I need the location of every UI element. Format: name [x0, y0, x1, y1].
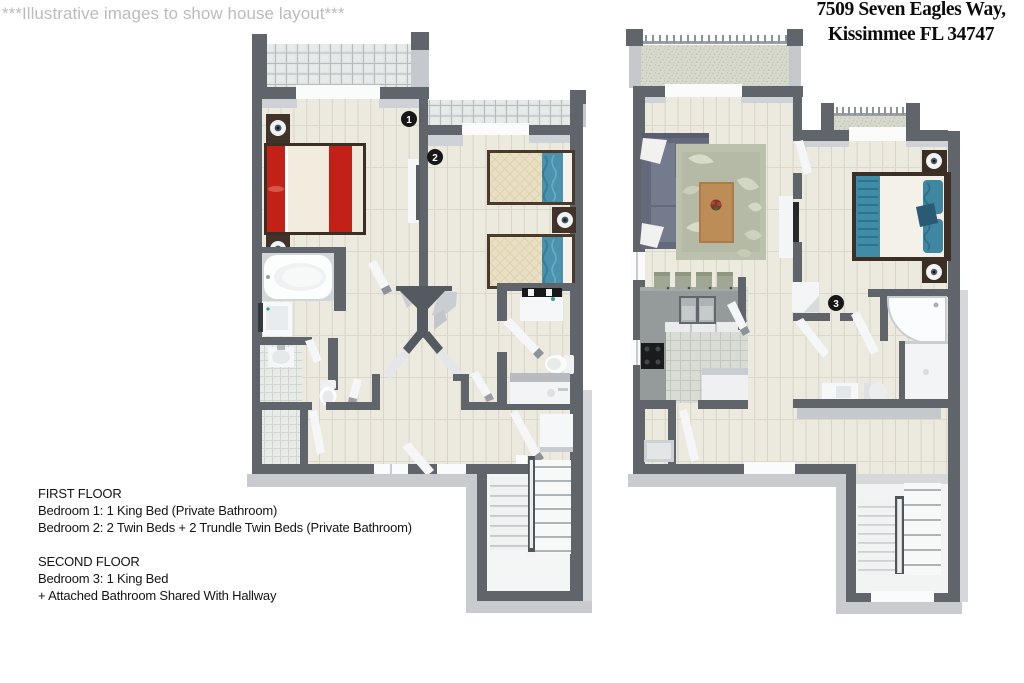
svg-text:3: 3: [833, 299, 839, 310]
svg-text:2: 2: [432, 153, 438, 164]
svg-text:1: 1: [406, 115, 412, 126]
